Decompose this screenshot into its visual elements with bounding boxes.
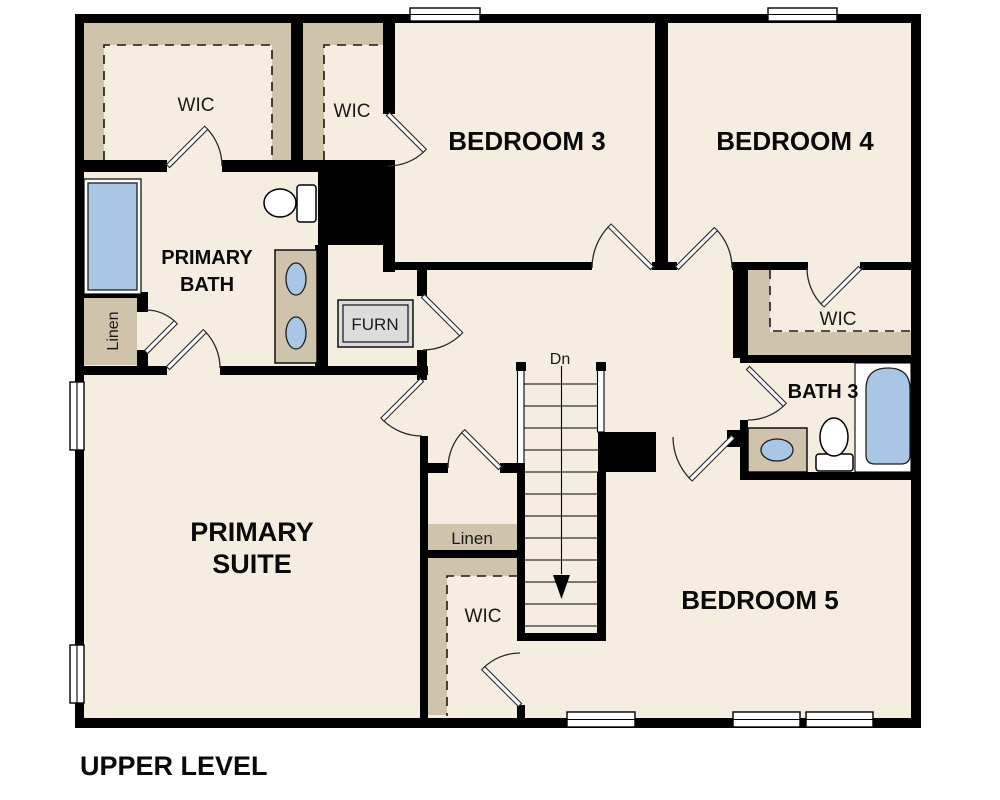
floor-plan-page: WIC WIC BEDROOM 3 BEDROOM 4 PRIMARY BATH…	[0, 0, 1000, 800]
label-linen-left: Linen	[105, 311, 122, 350]
window-bedroom5-mid	[733, 712, 800, 727]
label-primary-suite-2: SUITE	[212, 549, 292, 579]
label-bedroom4-wic: WIC	[820, 309, 857, 330]
label-bedroom5: BEDROOM 5	[681, 585, 838, 615]
primary-bath-tub	[84, 179, 141, 294]
label-linen-hall: Linen	[451, 529, 493, 548]
bath3-vanity	[748, 428, 807, 472]
label-bedroom3-wic: WIC	[334, 101, 371, 122]
window-bedroom3	[410, 8, 480, 21]
stair-rail-right	[598, 366, 605, 432]
window-suite-upper	[70, 382, 84, 450]
window-bedroom4	[768, 8, 837, 21]
sink-icon	[761, 439, 793, 461]
label-bedroom4: BEDROOM 4	[716, 126, 874, 156]
window-bedroom5-left	[567, 712, 635, 727]
window-bedroom5-right	[806, 712, 873, 727]
sink-icon	[286, 263, 306, 295]
floor-plan-svg: WIC WIC BEDROOM 3 BEDROOM 4 PRIMARY BATH…	[0, 0, 1000, 800]
stair-rail-left	[518, 366, 525, 473]
label-primary-suite-1: PRIMARY	[190, 517, 314, 547]
label-bath3: BATH 3	[788, 381, 859, 403]
window-suite-lower	[70, 645, 84, 703]
primary-bath-vanity	[275, 250, 317, 363]
label-primary-bath-2: BATH	[180, 274, 234, 296]
sink-icon	[286, 317, 306, 349]
page-title: UPPER LEVEL	[80, 751, 268, 781]
label-bedroom3: BEDROOM 3	[448, 126, 605, 156]
label-stairs-dn: Dn	[550, 351, 570, 368]
chase-block-lower	[598, 432, 656, 472]
bath3-tub	[855, 363, 911, 472]
label-primary-wic: WIC	[178, 95, 215, 116]
label-primary-bath-1: PRIMARY	[161, 247, 253, 269]
label-furnace: FURN	[351, 315, 398, 334]
chase-block-upper	[318, 172, 394, 245]
label-bedroom5-wic: WIC	[465, 606, 502, 627]
